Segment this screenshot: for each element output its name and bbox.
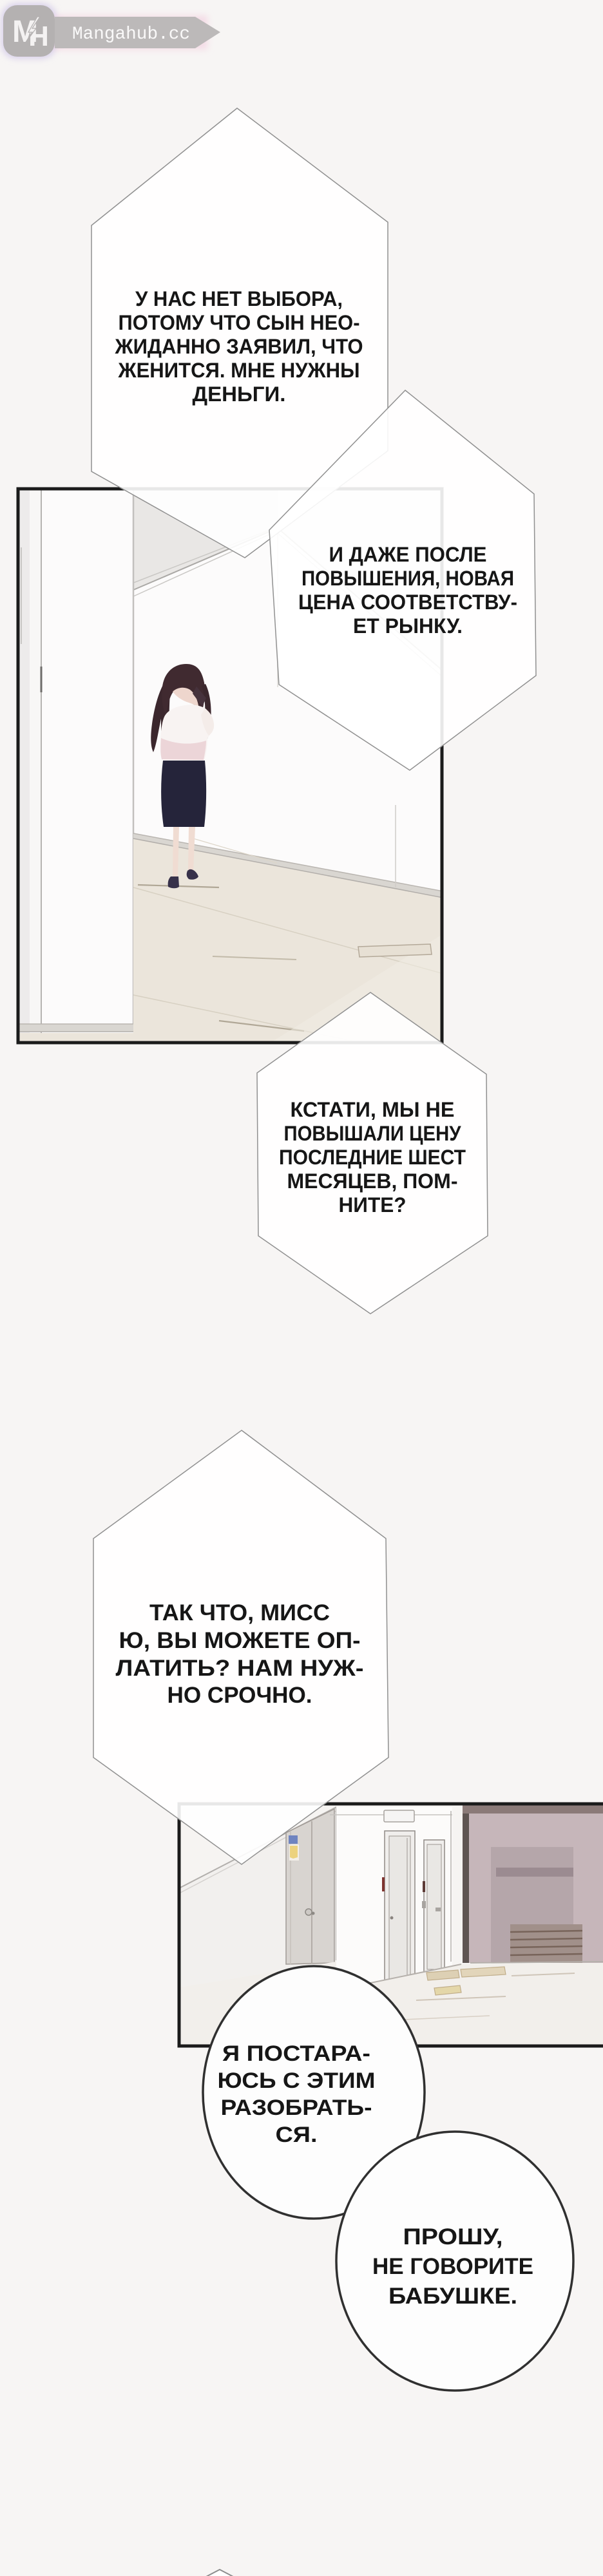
svg-text:И ДАЖЕ ПОСЛЕ: И ДАЖЕ ПОСЛЕ bbox=[329, 543, 487, 566]
svg-text:БАБУШКЕ.: БАБУШКЕ. bbox=[388, 2284, 517, 2309]
svg-text:СЯ.: СЯ. bbox=[276, 2123, 318, 2147]
svg-text:РАЗОБРАТЬ-: РАЗОБРАТЬ- bbox=[221, 2096, 372, 2120]
svg-text:ПОВЫШАЛИ ЦЕНУ: ПОВЫШАЛИ ЦЕНУ bbox=[284, 1122, 462, 1145]
svg-text:НЕ ГОВОРИТЕ: НЕ ГОВОРИТЕ bbox=[372, 2254, 533, 2279]
svg-text:Я ПОСТАРА-: Я ПОСТАРА- bbox=[222, 2041, 370, 2066]
svg-text:ЕТ РЫНКУ.: ЕТ РЫНКУ. bbox=[353, 614, 463, 638]
svg-text:ПОТОМУ ЧТО СЫН НЕО-: ПОТОМУ ЧТО СЫН НЕО- bbox=[119, 311, 360, 334]
svg-text:НО СРОЧНО.: НО СРОЧНО. bbox=[167, 1683, 312, 1708]
svg-text:У НАС НЕТ ВЫБОРА,: У НАС НЕТ ВЫБОРА, bbox=[135, 287, 343, 310]
svg-text:ПОСЛЕДНИЕ ШЕСТ: ПОСЛЕДНИЕ ШЕСТ bbox=[279, 1146, 466, 1169]
svg-text:H: H bbox=[28, 21, 49, 52]
svg-text:ПОВЫШЕНИЯ, НОВАЯ: ПОВЫШЕНИЯ, НОВАЯ bbox=[301, 567, 514, 590]
svg-text:ЖИДАННО ЗАЯВИЛ, ЧТО: ЖИДАННО ЗАЯВИЛ, ЧТО bbox=[115, 335, 363, 358]
svg-text:ПРОШУ,: ПРОШУ, bbox=[403, 2224, 503, 2249]
svg-text:ТАК ЧТО, МИСС: ТАК ЧТО, МИСС bbox=[149, 1600, 330, 1625]
svg-text:ЮСЬ С ЭТИМ: ЮСЬ С ЭТИМ bbox=[218, 2069, 376, 2093]
svg-text:ЖЕНИТСЯ. МНЕ НУЖНЫ: ЖЕНИТСЯ. МНЕ НУЖНЫ bbox=[118, 359, 360, 382]
svg-text:НИТЕ?: НИТЕ? bbox=[339, 1193, 407, 1217]
svg-text:ЛАТИТЬ? НАМ НУЖ-: ЛАТИТЬ? НАМ НУЖ- bbox=[116, 1656, 364, 1681]
svg-text:КСТАТИ, МЫ НЕ: КСТАТИ, МЫ НЕ bbox=[291, 1098, 455, 1121]
svg-text:Mangahub.cc: Mangahub.cc bbox=[72, 24, 190, 44]
svg-text:Ю, ВЫ МОЖЕТЕ ОП-: Ю, ВЫ МОЖЕТЕ ОП- bbox=[119, 1628, 361, 1653]
svg-text:ЦЕНА СООТВЕТСТВУ-: ЦЕНА СООТВЕТСТВУ- bbox=[298, 591, 517, 614]
svg-text:МЕСЯЦЕВ, ПОМ-: МЕСЯЦЕВ, ПОМ- bbox=[287, 1170, 458, 1193]
svg-text:ДЕНЬГИ.: ДЕНЬГИ. bbox=[193, 383, 286, 406]
